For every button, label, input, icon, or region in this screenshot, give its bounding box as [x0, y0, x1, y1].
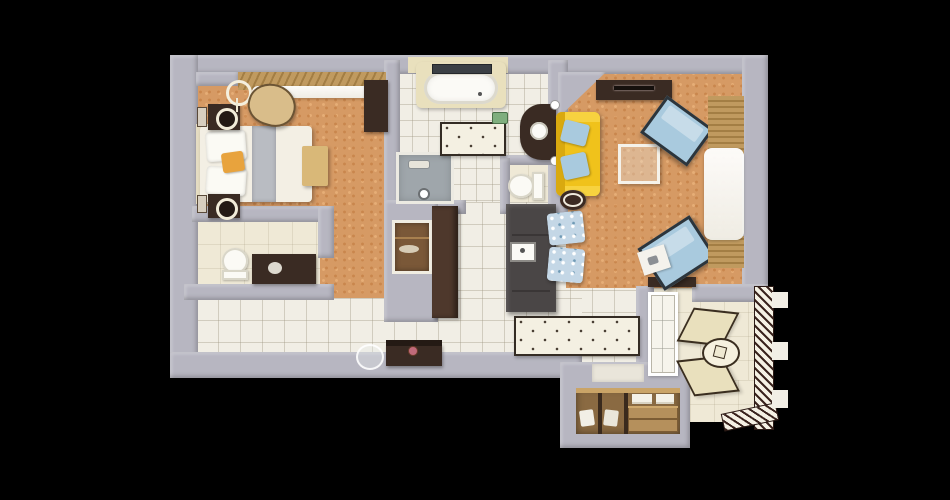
railing-post-3	[772, 390, 788, 408]
floor-lamp-stem	[236, 98, 238, 112]
closet-drawer-box	[628, 406, 678, 432]
living-sheer-curtain	[704, 148, 744, 240]
guest-bath-sink	[268, 262, 282, 274]
bed-bench	[302, 146, 328, 186]
floor-plan-image	[0, 0, 950, 500]
coffee-table	[618, 144, 660, 184]
hanging-clothes-2	[603, 409, 619, 427]
living-window-blinds-top	[708, 96, 744, 154]
balcony-door	[648, 292, 678, 376]
dining-chair-2	[547, 246, 586, 283]
folded-linens-1	[632, 394, 652, 402]
wall-guest-bath-bottom	[184, 284, 334, 300]
shower-control	[408, 160, 430, 169]
balcony-table	[702, 338, 740, 368]
bedroom-wardrobe	[364, 80, 388, 132]
guest-bath-counter	[252, 254, 316, 284]
flower-vase	[408, 346, 418, 356]
kitchen-wall-niche	[392, 220, 432, 274]
bathtub-window	[432, 64, 492, 74]
floor-plan	[0, 0, 950, 500]
closet-shelf-top	[576, 388, 680, 393]
bed-runner	[252, 126, 276, 202]
wall-right	[742, 55, 768, 302]
living-side-table	[560, 190, 586, 210]
drawer-line	[628, 418, 678, 420]
console-back-lip	[386, 340, 442, 346]
balcony-table-cube-decor	[713, 345, 728, 360]
bath-mat	[440, 122, 506, 156]
soap-dish	[492, 112, 508, 124]
tv-console	[596, 80, 672, 100]
bathtub	[424, 72, 498, 104]
closet-entry-marble	[592, 364, 644, 382]
toilet-tank	[532, 172, 544, 200]
wall-sconce-bottom	[197, 195, 207, 213]
kitchen-runner-rug	[514, 316, 640, 356]
wall-sconce-top	[197, 107, 207, 127]
island-panel-line-1	[512, 234, 550, 236]
kitchen-faucet	[520, 248, 525, 253]
guest-toilet-tank	[222, 270, 248, 280]
kitchen-tall-cabinet	[432, 206, 458, 318]
tv-screen	[614, 86, 654, 90]
railing-post-2	[772, 342, 788, 360]
vanity-sink	[530, 122, 548, 140]
wall-guest-bath-right	[318, 206, 334, 258]
island-panel-line-2	[512, 290, 550, 292]
folded-linens-2	[656, 394, 674, 402]
shower-fixture	[418, 188, 430, 200]
table-lamp-bottom	[216, 198, 238, 220]
living-window-blinds-bottom	[708, 236, 744, 268]
vanity-sconce-top	[550, 100, 560, 110]
niche-dish	[399, 245, 419, 253]
entry-round-mirror	[356, 344, 384, 370]
railing-post-1	[772, 292, 788, 308]
table-lamp-top	[216, 108, 238, 130]
hanging-clothes-1	[579, 409, 595, 427]
orange-pillow	[221, 151, 246, 174]
closet-interior	[576, 388, 680, 434]
dining-chair-1	[546, 210, 585, 246]
desk-item	[647, 255, 659, 266]
niche-shelf	[395, 237, 429, 239]
closet-divider-1	[598, 388, 602, 434]
toilet-seat	[508, 174, 534, 198]
bathtub-drain	[478, 92, 482, 96]
